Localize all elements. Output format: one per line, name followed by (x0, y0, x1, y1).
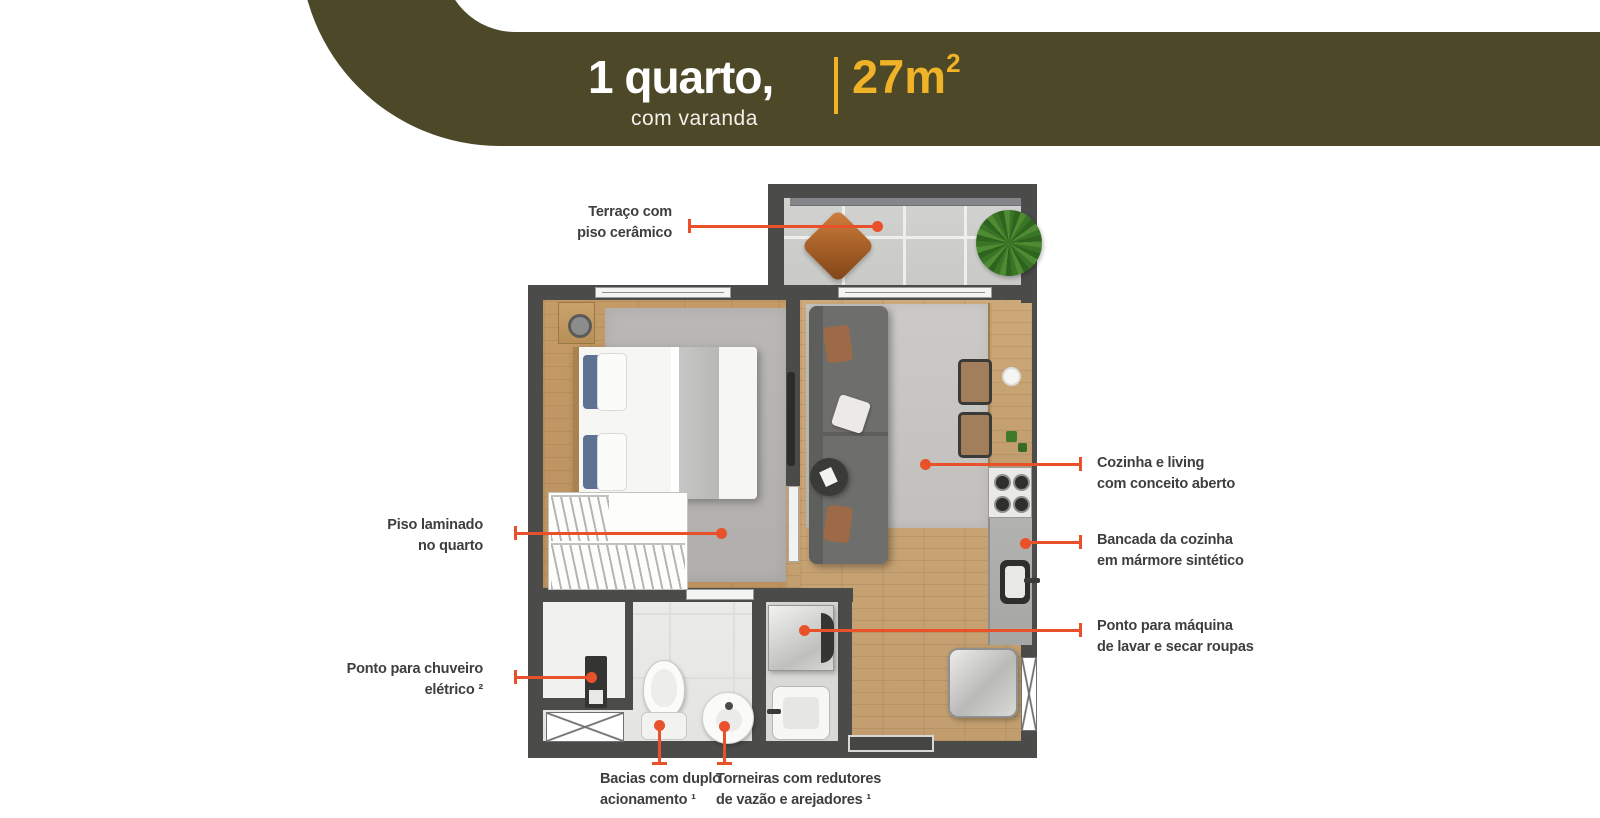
burner-4 (1013, 496, 1030, 513)
annotation-line: piso cerâmico (472, 223, 672, 244)
annotation-torneiras: Torneiras com redutores de vazão e areja… (716, 769, 906, 811)
banner-subtitle: com varanda (631, 107, 758, 131)
shower-drain-box (546, 712, 624, 742)
desk-plant-2 (1018, 443, 1027, 452)
desk-plant-1 (1006, 431, 1017, 442)
kitchen-sink (1000, 560, 1030, 604)
dining-desk (988, 303, 1032, 467)
toilet-bowl (643, 660, 685, 718)
leader-line (516, 532, 717, 535)
leader-line (690, 225, 878, 228)
sofa-cushion-1 (823, 324, 854, 363)
annotation-bancada: Bancada da cozinha em mármore sintético (1097, 530, 1327, 572)
annotation-line: com conceito aberto (1097, 474, 1327, 495)
page: 1 quarto, com varanda 27m2 (0, 0, 1600, 818)
annotation-line: de vazão e arejadores ¹ (716, 790, 906, 811)
leader-line (1026, 541, 1081, 544)
coffee-table-book (819, 467, 838, 487)
marker-dot (716, 528, 727, 539)
washing-machine (768, 605, 834, 671)
chair-1 (958, 359, 992, 405)
burner-2 (1013, 474, 1030, 491)
left-wall (528, 285, 543, 758)
annotation-line: Terraço com (472, 202, 672, 223)
wardrobe (548, 492, 688, 590)
bottom-wall (528, 741, 1037, 758)
annotation-line: no quarto (283, 536, 483, 557)
sink-faucet (1024, 578, 1040, 583)
bed-blanket (679, 347, 719, 499)
annotation-line: Piso laminado (283, 515, 483, 536)
leader-line (658, 726, 661, 764)
terrace-sliding-door (838, 287, 992, 298)
marker-dot (586, 672, 597, 683)
tank-faucet (767, 709, 781, 714)
annotation-piso-laminado: Piso laminado no quarto (283, 515, 483, 557)
coffee-table (810, 458, 848, 496)
leader-tick (1079, 623, 1082, 637)
double-bed (573, 347, 757, 499)
hanger-row-2 (551, 543, 685, 589)
pillow-white-2 (597, 433, 627, 491)
burner-1 (994, 474, 1011, 491)
washer-door (821, 613, 834, 663)
area-number: 27m (852, 50, 946, 103)
bedroom-window (595, 287, 731, 298)
area-superscript: 2 (946, 48, 960, 78)
leader-tick (1079, 457, 1082, 471)
tank-basin (783, 697, 819, 729)
laundry-tank (772, 686, 830, 740)
pillow-white-1 (597, 353, 627, 411)
annotation-line: Torneiras com redutores (716, 769, 906, 790)
terrace-top-wall (768, 184, 1021, 198)
fridge (948, 648, 1018, 718)
sofa-cushion-2 (823, 504, 854, 543)
annotation-chuveiro: Ponto para chuveiro elétrico ² (283, 659, 483, 701)
floor-plan (528, 184, 1040, 760)
annotation-line: em mármore sintético (1097, 551, 1327, 572)
leader-tick (1079, 535, 1082, 549)
stove (988, 467, 1032, 518)
banner-area-value: 27m2 (852, 49, 961, 104)
headboard (573, 347, 579, 499)
round-basin (702, 692, 754, 744)
laundry-right-wall (838, 588, 852, 741)
nightstand (558, 302, 595, 344)
annotation-line: Ponto para chuveiro (283, 659, 483, 680)
banner-title: 1 quarto, (588, 50, 773, 104)
annotation-terraco: Terraço com piso cerâmico (472, 202, 672, 244)
shower-divider-wall (625, 602, 633, 704)
basin-tap (725, 702, 733, 710)
toilet-seat (651, 669, 677, 707)
chair-2 (958, 412, 992, 458)
annotation-line: Ponto para máquina (1097, 616, 1327, 637)
sofa (809, 306, 888, 564)
bathroom-sliding-door (686, 589, 754, 600)
leader-line (723, 727, 726, 764)
annotation-line: Cozinha e living (1097, 453, 1327, 474)
shower-valve (589, 690, 603, 704)
leader-tick (717, 762, 732, 765)
terrace-left-wall (768, 184, 784, 300)
entry-door (848, 735, 934, 752)
bed-sheet-fold (671, 347, 679, 499)
bedroom-tv (787, 372, 795, 466)
terrace-plant (976, 210, 1042, 276)
banner-divider-bar (834, 57, 838, 114)
annotation-maquina: Ponto para máquina de lavar e secar roup… (1097, 616, 1327, 658)
sofa-backrest (809, 306, 823, 564)
burner-3 (994, 496, 1011, 513)
annotation-line: de lavar e secar roupas (1097, 637, 1327, 658)
desk-flower (1004, 369, 1019, 384)
leader-line (805, 629, 1081, 632)
bathroom-right-wall (752, 588, 766, 741)
sink-basin (1005, 566, 1025, 598)
marker-dot (872, 221, 883, 232)
leader-tick (652, 762, 667, 765)
sofa-pillow (831, 394, 871, 434)
annotation-line: elétrico ² (283, 680, 483, 701)
table-lamp (568, 314, 592, 338)
leader-line (516, 676, 588, 679)
annotation-line: Bancada da cozinha (1097, 530, 1327, 551)
banner-curve-notch (443, 0, 1600, 32)
bedroom-door (788, 486, 799, 562)
duct-shaft (1021, 657, 1037, 731)
leader-line (925, 463, 1081, 466)
annotation-cozinha-living: Cozinha e living com conceito aberto (1097, 453, 1327, 495)
